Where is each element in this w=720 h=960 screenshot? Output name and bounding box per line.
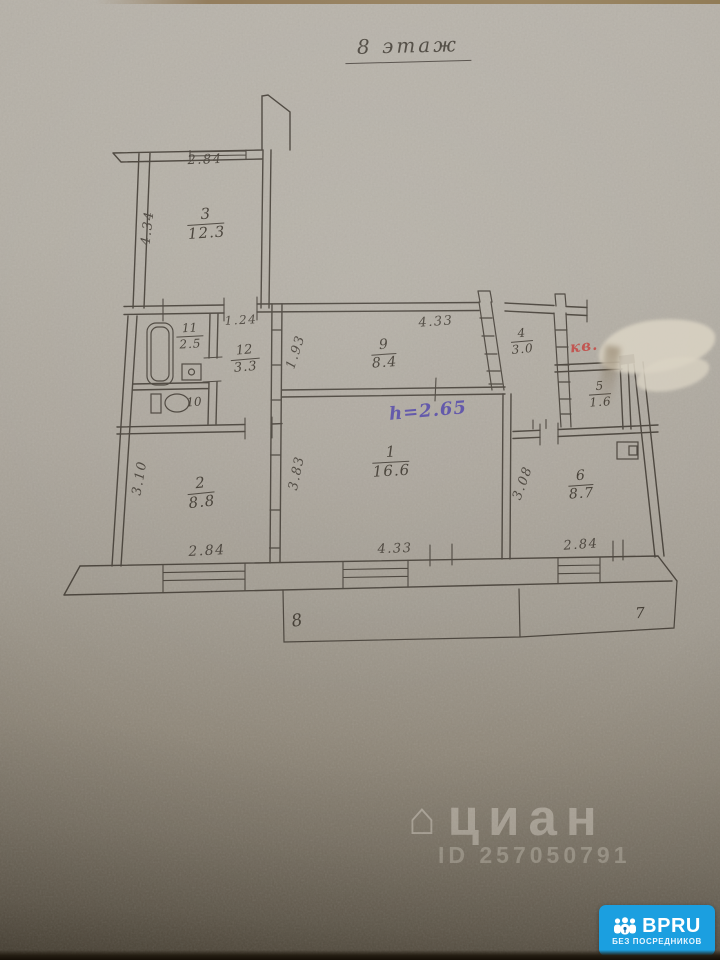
floor-plan-linework xyxy=(0,0,720,960)
balcony-label-7: 7 xyxy=(635,604,645,622)
room-number: 11 xyxy=(176,321,204,337)
bpru-people-icon xyxy=(613,917,637,935)
balcony-label-8: 8 xyxy=(290,610,304,632)
room-area: 3.0 xyxy=(511,341,534,356)
room-number: 9 xyxy=(370,337,396,355)
dim-bottom-room1: 4.33 xyxy=(377,541,412,557)
floorplan-photo: 8 этаж 3 12.3 11 2.5 12 3.3 9 8.4 4 3.0 … xyxy=(0,0,720,960)
room-label-6: 6 8.7 xyxy=(567,468,594,502)
room-label-12: 12 3.3 xyxy=(229,343,260,376)
room-number: 6 xyxy=(567,468,593,486)
dim-room6-left: 3.08 xyxy=(510,464,536,502)
dim-room2-left: 3.10 xyxy=(130,459,151,496)
room-label-2: 2 8.8 xyxy=(186,474,216,511)
balcony-outline xyxy=(283,581,677,642)
bpru-tagline: БЕЗ ПОСРЕДНИКОВ xyxy=(612,938,702,946)
photo-bottom-edge xyxy=(0,950,720,960)
room-label-11: 11 2.5 xyxy=(176,321,205,351)
bpru-badge-row: BPRU xyxy=(613,916,701,936)
photo-vignette xyxy=(0,0,720,960)
room-label-3: 3 12.3 xyxy=(186,205,226,242)
cian-brand-text: циан xyxy=(448,792,606,843)
bpru-badge: BPRU БЕЗ ПОСРЕДНИКОВ xyxy=(599,905,715,956)
red-apartment-note: кв. xyxy=(569,336,599,357)
floor-title: 8 этаж xyxy=(345,32,472,64)
dim-top-room3: 2.84 xyxy=(187,152,222,168)
dim-hall-width: 1.24 xyxy=(224,312,257,328)
room-area: 2.5 xyxy=(176,336,204,351)
room-label-4: 4 3.0 xyxy=(510,326,534,356)
dim-bottom-room2: 2.84 xyxy=(188,542,226,560)
room-label-10: 10 xyxy=(186,394,202,409)
closet-icon xyxy=(617,442,638,459)
room-label-9: 9 8.4 xyxy=(370,337,397,371)
listing-id-watermark: ID 257050791 xyxy=(438,842,631,869)
room-label-1: 1 16.6 xyxy=(371,444,410,480)
room-area: 16.6 xyxy=(372,462,410,481)
bpru-brand-text: BPRU xyxy=(642,916,701,936)
dim-room9-left: 1.93 xyxy=(283,333,308,371)
paper-top-edge xyxy=(96,0,720,4)
dim-left-room3: 4.34 xyxy=(138,210,157,247)
dim-room9-top: 4.33 xyxy=(418,313,454,330)
cian-watermark: ⌂ циан xyxy=(408,792,606,843)
sink-icon xyxy=(182,364,201,380)
room-area: 12.3 xyxy=(187,223,225,242)
bathtub-icon xyxy=(147,323,173,385)
toilet-icon xyxy=(151,394,189,413)
room-area: 3.3 xyxy=(231,358,261,375)
room-area: 8.4 xyxy=(371,354,397,371)
room-area: 8.8 xyxy=(188,492,216,511)
paper-grain xyxy=(0,0,720,960)
dim-room1-left: 3.83 xyxy=(286,454,308,491)
cian-house-icon: ⌂ xyxy=(408,795,436,841)
dim-bottom-room6: 2.84 xyxy=(563,536,599,553)
room-area: 8.7 xyxy=(568,485,594,502)
window-symbols xyxy=(163,150,600,593)
ceiling-height-note: h=2.65 xyxy=(388,397,468,425)
